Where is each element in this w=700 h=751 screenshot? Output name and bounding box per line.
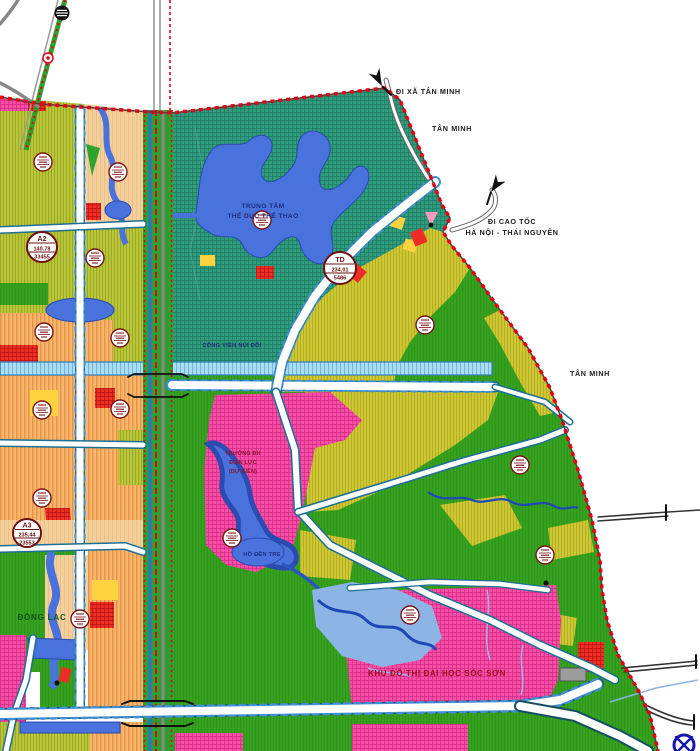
zone-badge-td: TD 234.01 5486 [324, 252, 356, 284]
label-dong-lac: ĐỒNG LẠC [17, 612, 66, 622]
label-di-cao-toc-2: HÀ NỘI - THÁI NGUYÊN [465, 228, 558, 237]
label-sports-center-2: THỂ DỤC THỂ THAO [227, 211, 298, 220]
svg-text:TD: TD [335, 257, 344, 264]
label-uni-urban-area: KHU ĐÔ THỊ ĐẠI HỌC SÓC SƠN [368, 669, 506, 678]
svg-text:140.78: 140.78 [33, 247, 50, 253]
planning-map-viewport: A2 140.78 33455 A3 235.44 23553 TD 234.0… [0, 0, 700, 751]
label-tan-minh-east: TÂN MINH [570, 369, 610, 378]
svg-text:33455: 33455 [34, 255, 50, 261]
svg-text:23553: 23553 [19, 541, 35, 547]
svg-text:5486: 5486 [334, 276, 346, 282]
label-park: CÔNG VIÊN NÚI ĐÔI [202, 341, 261, 349]
rail-marker-icon [43, 53, 53, 63]
label-di-xa-tan-minh: ĐI XÃ TÂN MINH [396, 87, 461, 96]
canal-east-west [0, 362, 492, 375]
label-tan-minh-north: TÂN MINH [432, 124, 472, 133]
svg-text:235.44: 235.44 [18, 533, 36, 539]
planning-map: A2 140.78 33455 A3 235.44 23553 TD 234.0… [0, 0, 700, 751]
svg-text:A2: A2 [38, 236, 47, 243]
label-lake: HỒ ĐỀN TRE [243, 551, 281, 558]
zone-badge-a2: A2 140.78 33455 [27, 232, 57, 262]
label-di-cao-toc-1: ĐI CAO TỐC [488, 216, 536, 226]
svg-text:234.01: 234.01 [331, 268, 348, 274]
label-sports-center-1: TRUNG TÂM [241, 201, 284, 210]
rail-station-icon [55, 6, 70, 21]
label-university-2: ĐIỆN LỰC [229, 458, 257, 466]
label-university-1: TRƯỜNG ĐH [225, 449, 260, 457]
zone-badge-a3: A3 235.44 23553 [13, 519, 41, 547]
label-university-3: (DỰ KIẾN) [229, 468, 257, 475]
svg-text:A3: A3 [23, 523, 32, 530]
